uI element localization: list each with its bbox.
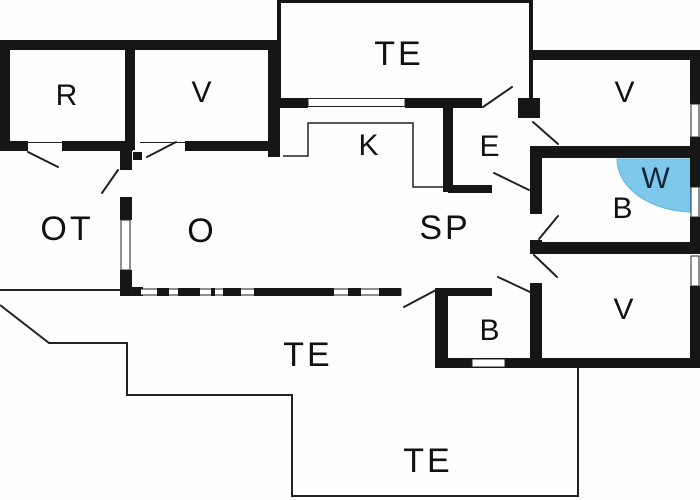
room-label-v-bottom-right: V [613, 295, 634, 325]
room-label-b-right: B [612, 194, 633, 224]
room-label-sp: SP [419, 211, 470, 245]
room-label-r: R [56, 81, 79, 111]
room-label-v-top-left: V [191, 78, 212, 108]
room-label-te-top: TE [374, 37, 423, 71]
room-label-e: E [479, 132, 500, 162]
glass-wall [133, 288, 401, 296]
room-label-ot: OT [40, 212, 93, 246]
room-label-te-bottom: TE [403, 444, 452, 478]
room-label-k: K [358, 131, 379, 161]
door-swings [28, 87, 558, 307]
room-label-b-bottom: B [479, 316, 500, 346]
room-label-te-middle: TE [283, 338, 332, 372]
room-label-v-top-right: V [614, 78, 635, 108]
walls [0, 40, 700, 368]
floor-plan-drawing [0, 0, 700, 500]
room-label-w: W [641, 164, 670, 194]
room-label-o: O [187, 214, 216, 248]
floor-plan: R V TE V K E W B OT O SP V B TE TE [0, 0, 700, 500]
